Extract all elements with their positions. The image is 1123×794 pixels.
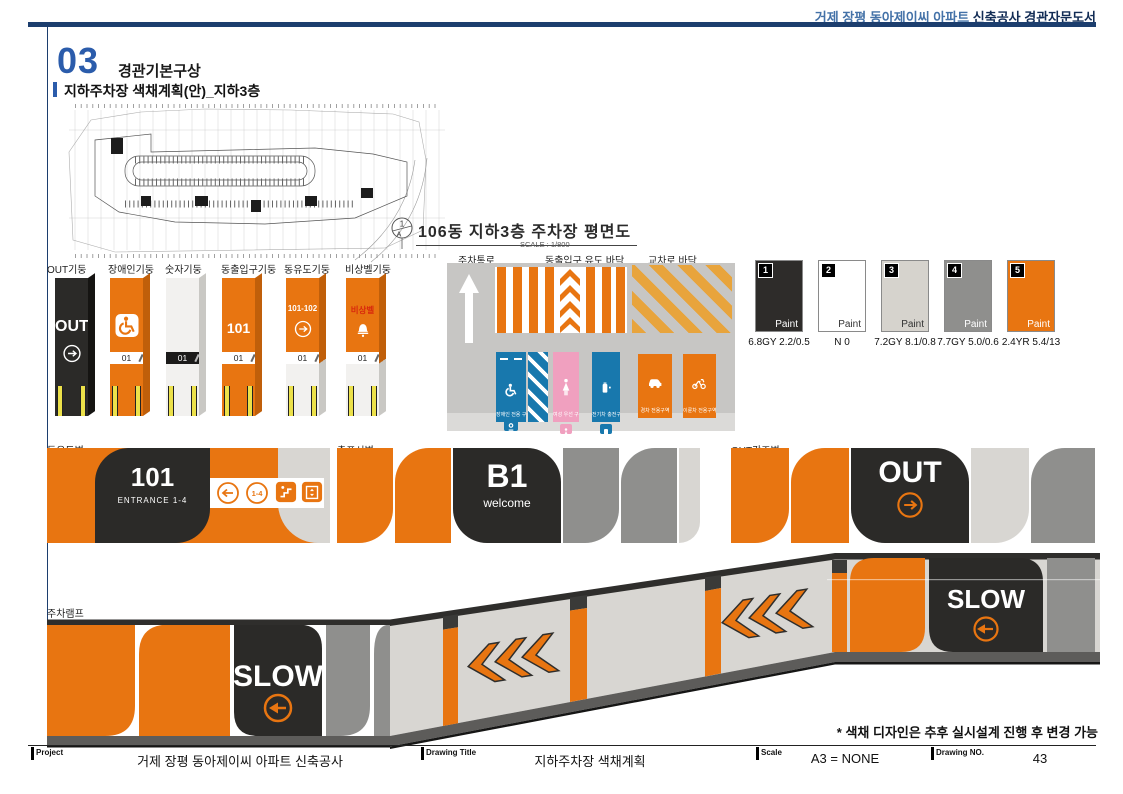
subtitle-bar	[53, 82, 57, 97]
guide-floor-stripes	[495, 267, 627, 333]
stall-disabled-hatch	[528, 352, 548, 422]
section-title: 경관기본구상	[118, 60, 201, 81]
safety-stripes	[110, 386, 143, 416]
svg-text:1: 1	[400, 220, 405, 229]
pillar-disabled: 01	[110, 278, 152, 418]
pillar-entrance: 101 01	[222, 278, 264, 418]
safety-stripes	[166, 386, 199, 416]
elevator-icon	[301, 481, 323, 503]
swatch-code: 7.7GY 5.0/0.6	[933, 337, 1003, 348]
pillar-band: 01	[166, 352, 199, 364]
out-text: OUT	[851, 456, 969, 490]
slow-text-right: SLOW	[947, 584, 1025, 614]
pillar-entrance-number: 101	[222, 320, 255, 336]
emergency-bell-text: 비상벨	[346, 304, 379, 316]
pillar-guide: 101-102 01	[286, 278, 328, 418]
entrance-range: ENTRANCE 1-4	[95, 496, 210, 505]
out-wall-panel: OUT	[731, 448, 1095, 543]
swatch-code: 2.4YR 5.4/13	[996, 337, 1066, 348]
footer-scale-value: A3 = NONE	[785, 751, 905, 766]
stall-tab-women	[560, 424, 572, 434]
chevron-up-column-icon	[558, 267, 582, 333]
footer-tick	[756, 747, 759, 760]
pillar-out-text: OUT	[55, 318, 88, 336]
motorcycle-icon	[690, 374, 708, 392]
color-swatch-3: 3Paint	[881, 260, 929, 332]
ev-charger-icon	[598, 380, 614, 396]
footer-tick	[421, 747, 424, 760]
section-number: 03	[57, 40, 99, 82]
stall-tab-ev	[600, 424, 612, 434]
stairs-icon	[275, 481, 297, 503]
pillar-number: 01	[166, 278, 208, 418]
slow-text-left: SLOW	[233, 660, 324, 693]
pillar-side	[88, 273, 95, 416]
footer-tick	[931, 747, 934, 760]
compact-car-icon	[646, 374, 664, 392]
swatch-code: 6.8GY 2.2/0.5	[744, 337, 814, 348]
entrance-range-circle-icon: 1-4	[245, 481, 269, 505]
pillar-band: 01	[110, 352, 143, 364]
footer-title-value: 지하주차장 색채계획	[470, 751, 710, 770]
arrow-right-circle-icon	[62, 344, 81, 363]
guide-wall-band: 1-4	[210, 478, 324, 508]
color-swatch-1: 1 Paint	[755, 260, 803, 332]
drawing-sheet: 거제 장평 동아제이씨 아파트 신축공사 경관자문도서 03 경관기본구상 지하…	[0, 0, 1123, 794]
pillar-out: OUT	[55, 278, 97, 418]
out-block: OUT	[851, 448, 969, 543]
swatch-code: 7.2GY 8.1/0.8	[870, 337, 940, 348]
pillar-emergency-bell: 비상벨 01	[346, 278, 388, 418]
svg-text:A: A	[397, 232, 402, 239]
aisle-arrow-icon	[455, 270, 483, 346]
wheelchair-icon	[503, 382, 519, 398]
safety-stripes	[222, 386, 255, 416]
floor-welcome: welcome	[453, 496, 561, 510]
building-number: 101	[95, 462, 210, 493]
footer-number-label: Drawing NO.	[936, 748, 984, 757]
safety-stripes	[55, 386, 88, 416]
stall-disabled: 장애인 전용 구역	[496, 352, 526, 422]
stall-ev: 전기차 충전구역	[592, 352, 620, 422]
footer-scale-label: Scale	[761, 748, 782, 757]
stall-women: 여성 우선 구역	[553, 352, 579, 422]
plan-marker-icon: 1 A	[390, 216, 414, 250]
footer-number-value: 43	[980, 751, 1100, 766]
pillar-band: 01	[346, 352, 379, 364]
plan-scale: SCALE : 1/800	[520, 240, 570, 249]
floor-sign-block: B1 welcome	[453, 448, 561, 543]
arrow-right-circle-icon	[896, 491, 924, 519]
bell-icon	[354, 322, 371, 339]
swatch-code: N 0	[807, 337, 877, 348]
pillar-number-label: 숫자기둥	[165, 261, 202, 276]
page-title: 지하주차장 색채계획(안)_지하3층	[64, 81, 260, 101]
footer-title-label: Drawing Title	[426, 748, 476, 757]
stall-compact-car: 경차 전용구역	[638, 354, 672, 418]
stall-motorcycle: 이륜차 전용구역	[683, 354, 716, 418]
pillar-entrance-label: 동출입구기둥	[221, 261, 276, 276]
color-swatch-5: 5Paint	[1007, 260, 1055, 332]
arrow-left-circle-icon	[216, 481, 240, 505]
woman-icon	[558, 378, 574, 398]
crossing-floor-stripes	[632, 265, 732, 333]
color-swatch-4: 4Paint	[944, 260, 992, 332]
svg-text:1-4: 1-4	[252, 489, 264, 498]
swatch-number: 1	[758, 263, 773, 278]
color-swatch-2: 2Paint	[818, 260, 866, 332]
header-rule	[28, 22, 1096, 27]
arrow-right-circle-icon	[294, 320, 312, 338]
footer-rule	[28, 745, 1096, 746]
safety-stripes	[286, 386, 319, 416]
floor-number: B1	[453, 458, 561, 495]
stall-tab-disabled	[504, 420, 518, 431]
floor-sign-wall-panel: B1 welcome	[337, 448, 700, 543]
safety-stripes	[346, 386, 379, 416]
guide-wall-panel: 101 ENTRANCE 1-4 1-4	[47, 448, 330, 543]
footer-project-value: 거제 장평 동아제이씨 아파트 신축공사	[60, 751, 420, 770]
guide-wall-number-block: 101 ENTRANCE 1-4	[95, 448, 210, 543]
footer-tick	[31, 747, 34, 760]
pillar-band: 01	[222, 352, 255, 364]
revision-note: * 색채 디자인은 추후 실시설계 진행 후 변경 가능	[837, 722, 1098, 741]
pillar-band: 01	[286, 352, 319, 364]
wheelchair-icon	[115, 314, 138, 337]
pillar-out-label: OUT기둥	[47, 261, 87, 276]
swatch-finish: Paint	[775, 319, 798, 330]
pillar-guide-range: 101-102	[286, 304, 319, 313]
